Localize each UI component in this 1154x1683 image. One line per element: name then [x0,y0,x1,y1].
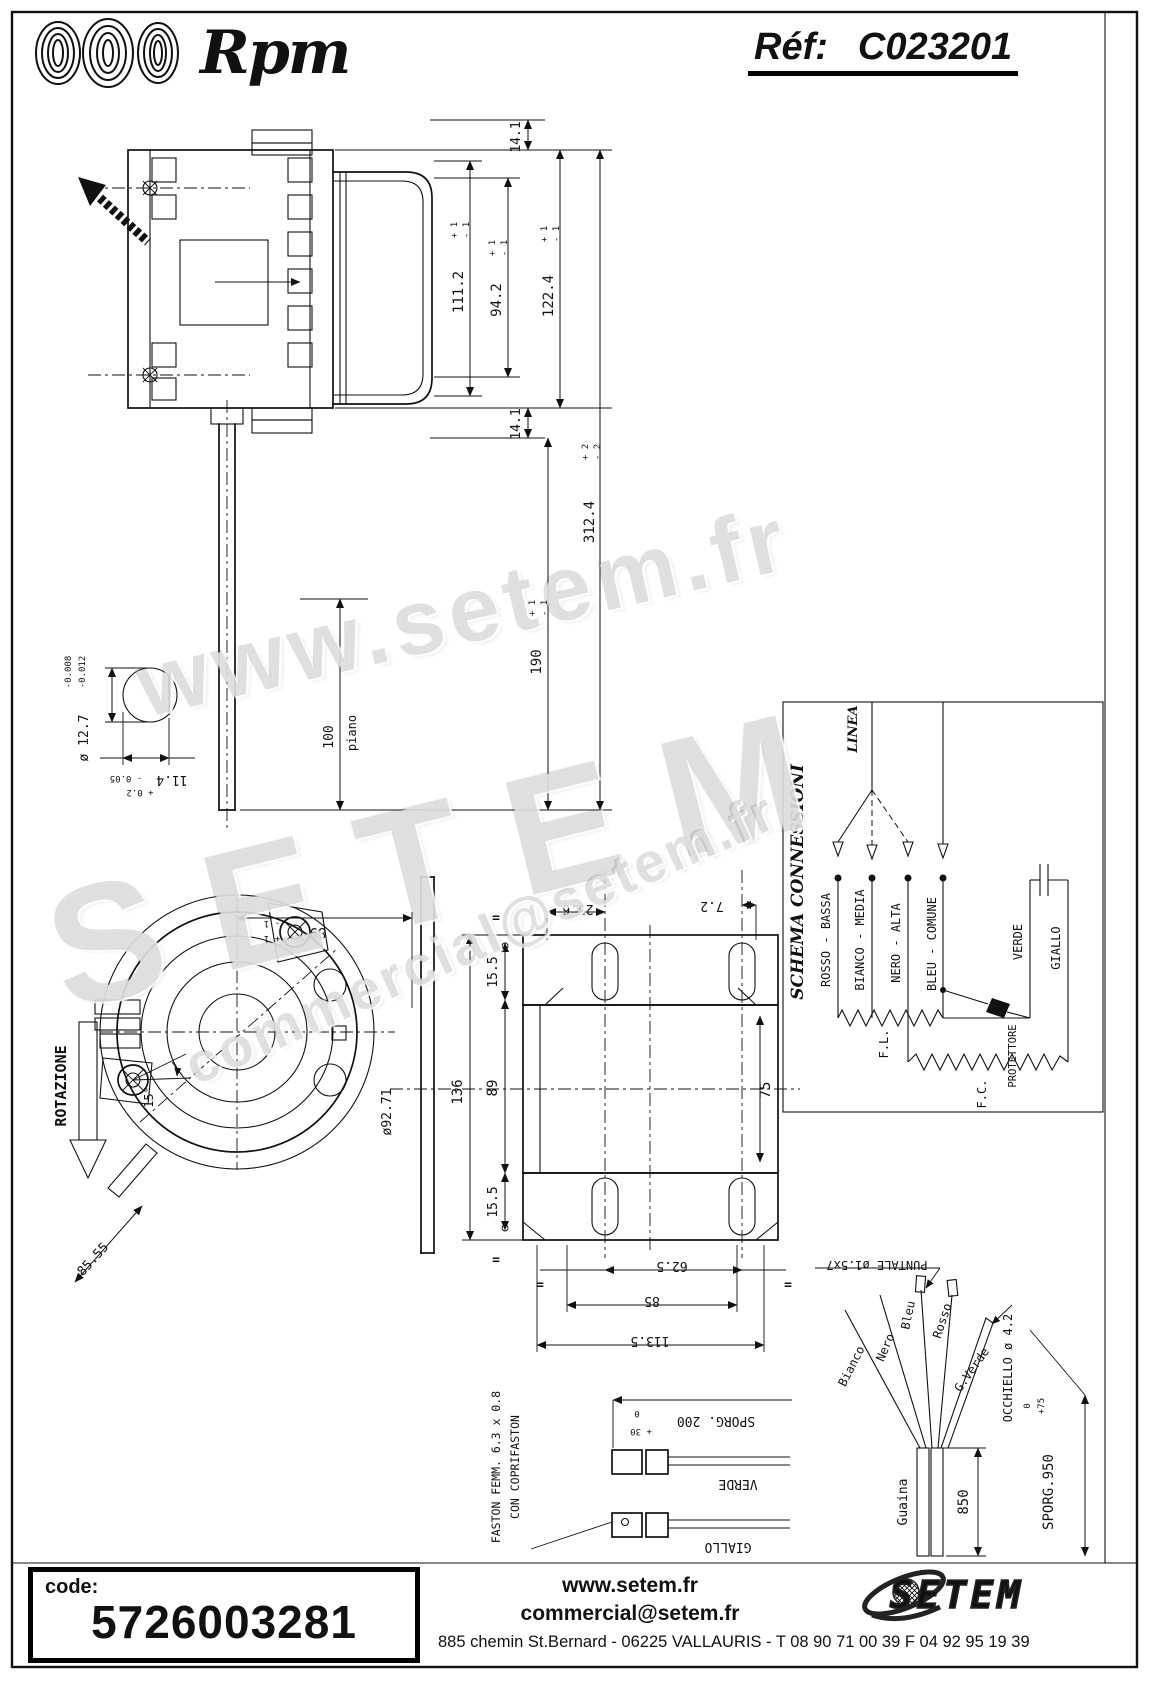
cable-bundle: Bianco Nero Bleu Rosso G.Verde Guaina 85… [815,1258,1085,1556]
svg-text:+ 1: + 1 [528,600,538,616]
reference-number: Réf:C023201 [748,26,1018,76]
faston-detail: FASTON FEMM. 6.3 x 0.8 CON COPRIFASTON S… [489,1391,792,1554]
dim-85: 85 [644,1293,660,1308]
schema-connessioni: SCHEMA CONNESSIONI LINEA ROSSO - BASSA B… [783,702,1103,1112]
label-faston-1: FASTON FEMM. 6.3 x 0.8 [489,1391,503,1543]
dim-100: 100 [322,725,337,748]
dim-850: 850 [956,1489,972,1514]
dim-25-6: 25.6 [562,901,593,916]
label-gverde: G.Verde [951,1345,991,1394]
label-giallo-wire: GIALLO [704,1539,751,1554]
flange-side-view: 25.6 7.2 136 15.5 89 15.5 75 = = 62.5 = [390,870,800,1352]
svg-text:- 1: - 1 [540,600,550,616]
footer-contacts: www.setem.fr commercial@setem.fr [455,1572,805,1628]
dim-15-5-bottom: 15.5 [486,1186,501,1217]
schema-title: SCHEMA CONNESSIONI [788,763,808,1000]
dim-75: 75 [758,1082,774,1099]
label-bianco-media: BIANCO - MEDIA [853,889,867,991]
label-verde-wire: VERDE [718,1476,757,1491]
label-rotazione: ROTAZIONE [52,1045,70,1126]
dim-113-5: 113.5 [630,1333,669,1348]
rpm-logo: Rpm [30,16,349,90]
setem-logo-text: SETEM [890,1573,1024,1617]
label-piano: piano [345,715,359,751]
dim-136: 136 [450,1079,466,1104]
brand-name: Rpm [200,18,349,88]
label-puntale: PUNTALE ø1.5x7 [826,1258,927,1272]
label-verde: VERDE [1011,924,1025,960]
svg-text:+ 1: + 1 [540,226,550,242]
label-fl: F.L. [877,1030,891,1059]
svg-text:- 1: - 1 [264,918,280,928]
svg-text:+ 1: + 1 [450,222,460,238]
label-occhiello: OCCHIELLO ø 4.2 [1001,1314,1015,1422]
svg-text:+ 1: + 1 [488,240,498,256]
label-bianco: Bianco [835,1344,867,1389]
drawing-sheet: 14.1 14.1 111.2 + 1 - 1 94.2 + 1 - 1 122… [0,0,1154,1683]
dim-312-4: 312.4 [582,501,598,543]
footer-address: 885 chemin St.Bernard - 06225 VALLAURIS … [438,1633,1138,1652]
label-nero-alta: NERO - ALTA [889,902,903,982]
dim-sporg-950: SPORG.950 [1041,1454,1057,1530]
label-nero: Nero [873,1331,897,1363]
dim-15deg: 15° [142,1086,156,1108]
svg-text:0: 0 [634,1408,639,1418]
dim-shaft-flat: 11.4 [156,772,187,787]
svg-text:=: = [492,911,500,926]
dim-7-2: 7.2 [700,898,723,913]
dim-sporg-200: SPORG. 200 [677,1413,755,1428]
svg-text:- 2: - 2 [593,444,603,460]
svg-text:+ 30: + 30 [630,1426,652,1436]
footer-email: commercial@setem.fr [455,1600,805,1628]
svg-text:+ 0.2: + 0.2 [126,787,153,797]
shaft-section-detail: ø 12.7 -0.008 -0.012 11.4 - 0.05 + 0.2 [64,656,195,797]
dim-92-71: ø92.71 [380,1089,395,1136]
footer-site: www.setem.fr [455,1572,805,1600]
dim-14-1-top: 14.1 [509,121,524,152]
label-bleu: Bleu [898,1300,918,1331]
motor-side-view [78,130,432,832]
dim-122-4: 122.4 [541,275,557,317]
svg-text:0: 0 [1023,1403,1033,1408]
ref-value: C023201 [858,26,1012,68]
svg-text:=: = [784,1278,792,1293]
motor-side-dims: 14.1 14.1 111.2 + 1 - 1 94.2 + 1 - 1 122… [240,120,612,810]
label-linea: LINEA [846,705,861,753]
label-fc: F.C. [975,1080,989,1109]
svg-text:- 1: - 1 [462,222,472,238]
svg-text:=: = [492,1253,500,1268]
dim-89: 89 [485,1080,501,1097]
setem-logo: SETEM [852,1563,1122,1632]
svg-text:-0.008: -0.008 [64,656,74,689]
svg-text:+ 1: + 1 [264,933,280,943]
svg-text:- 1: - 1 [500,240,510,256]
dim-89-rear: 89 [310,924,327,940]
dim-85-55: 85.55 [75,1240,112,1279]
svg-text:-0.012: -0.012 [78,656,88,689]
svg-text:+ 2: + 2 [581,444,591,460]
ref-label: Réf: [754,26,828,68]
dim-62-5: 62.5 [656,1258,687,1273]
dim-shaft-diameter: ø 12.7 [77,715,92,762]
svg-text:- 0.05: - 0.05 [110,773,143,783]
dim-94-2: 94.2 [489,283,505,317]
label-faston-2: CON COPRIFASTON [508,1415,522,1519]
label-giallo: GIALLO [1049,926,1063,969]
sheet-frame [12,12,1137,1667]
label-bleu-comune: BLEU - COMUNE [925,897,939,991]
dim-111-2: 111.2 [451,271,467,313]
dim-14-1-bottom: 14.1 [509,408,524,439]
dim-15-5-top: 15.5 [486,956,501,987]
code-value: 5726003281 [33,1595,415,1649]
cad-drawing: 14.1 14.1 111.2 + 1 - 1 94.2 + 1 - 1 122… [0,0,1154,1683]
rpm-coils-icon [30,16,190,90]
label-guaina: Guaina [896,1479,911,1526]
label-rosso: Rosso [930,1301,954,1340]
svg-text:- 1: - 1 [552,226,562,242]
code-box: code: 5726003281 [28,1567,420,1663]
motor-rear-view: ROTAZIONE 15° 89 + 1 - 1 ø92.71 85.55 [52,895,412,1282]
svg-text:+75: +75 [1037,1398,1047,1414]
label-rosso-bassa: ROSSO - BASSA [819,892,833,987]
dim-190: 190 [529,649,545,674]
